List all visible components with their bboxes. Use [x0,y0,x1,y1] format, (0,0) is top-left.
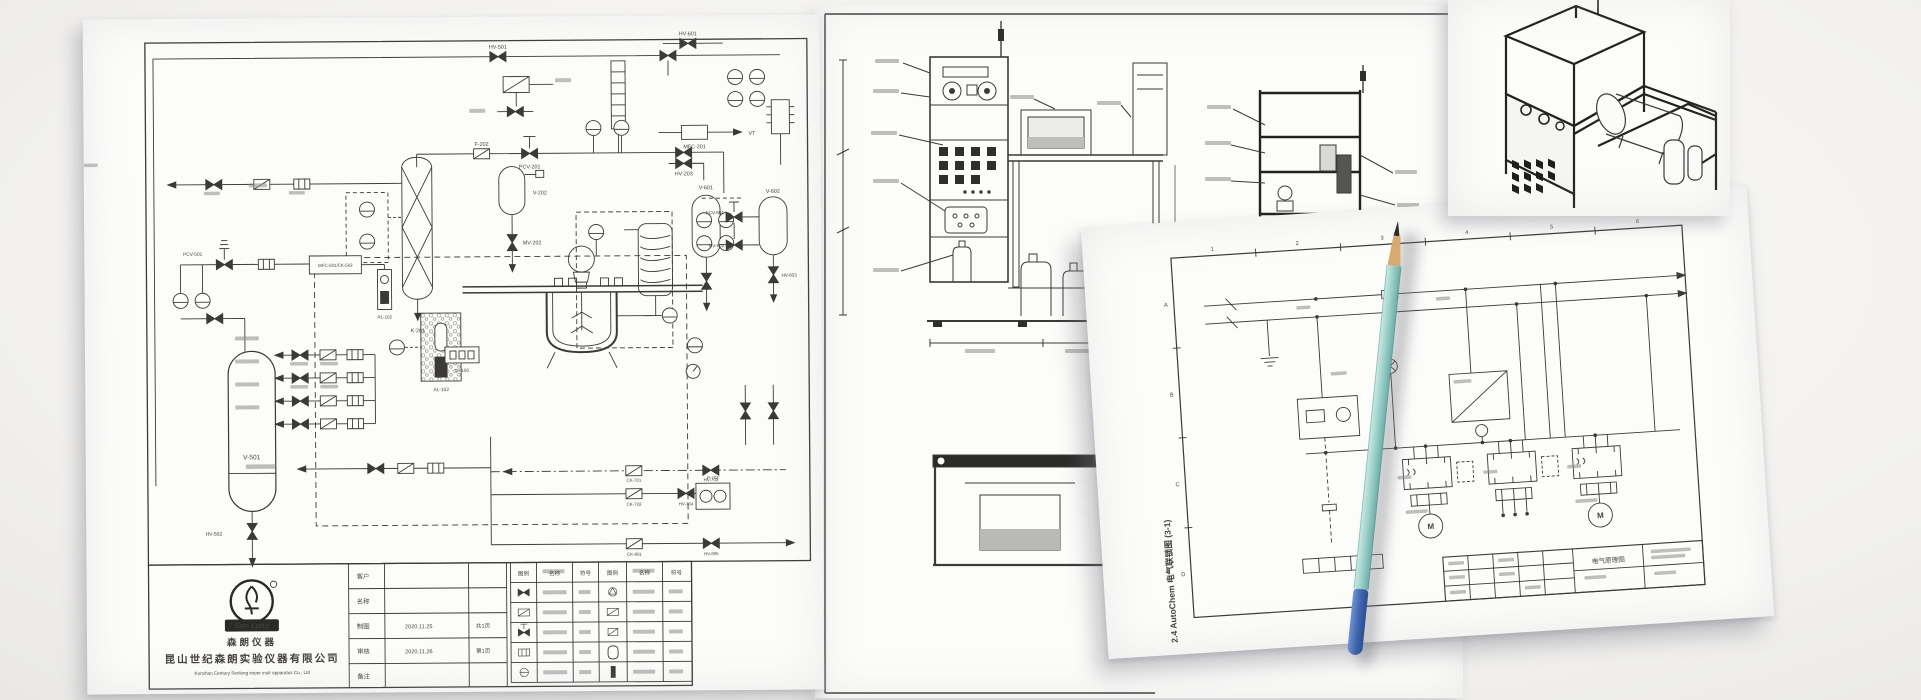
svg-text:1: 1 [1211,246,1215,252]
svg-text:PCV-501: PCV-501 [183,252,203,258]
svg-text:3: 3 [1380,235,1384,241]
svg-text:HV-704: HV-704 [679,501,694,506]
elec-caption: 2.4 AutoChem 电气联锁图 (3-1) [1161,519,1180,643]
svg-text:M: M [1597,511,1605,520]
svg-text:符号: 符号 [580,569,592,577]
svg-text:PCV-201: PCV-201 [519,164,541,170]
svg-text:CK-702: CK-702 [627,502,642,507]
svg-text:CK-801: CK-801 [627,552,642,557]
svg-text:HV-602: HV-602 [709,243,725,248]
isometric-drawing [1448,0,1730,216]
svg-text:备注: 备注 [357,672,370,681]
electrical-sheet: 1 2 3 4 5 6 A B C D M M 电气原理图 2.4 AutoCh… [1081,185,1774,659]
svg-text:AL-102: AL-102 [433,387,449,393]
svg-text:VT: VT [748,131,756,137]
svg-text:MV-202: MV-202 [523,240,542,246]
svg-text:共1页: 共1页 [476,622,491,630]
svg-text:V-601: V-601 [699,185,713,191]
svg-text:HV-603: HV-603 [781,273,797,278]
svg-text:DI-100: DI-100 [455,368,469,373]
svg-text:2020.11.25: 2020.11.25 [405,624,433,630]
svg-text:B: B [1170,392,1174,398]
svg-text:HV-502: HV-502 [206,532,223,538]
svg-text:审核: 审核 [357,647,370,656]
svg-text:FCV-601: FCV-601 [706,210,725,215]
svg-text:HV-805: HV-805 [704,551,719,556]
pencil-wood [1387,235,1403,266]
svg-text:图例: 图例 [607,569,619,577]
svg-text:4: 4 [1465,230,1469,236]
svg-text:HV-203: HV-203 [675,171,693,177]
svg-text:K-201: K-201 [411,328,425,334]
svg-text:C: C [1175,482,1179,488]
svg-text:5: 5 [1550,224,1554,230]
pid-sheet: HV-501 F-202 PCV-201 K-201 V-202 MV-202 … [83,14,825,694]
pid-title-block: 客户 名称 制图 审核 备注 2020.11.25 2020.11.26 共1页… [357,571,491,681]
pencil-tip-icon [1393,221,1400,237]
svg-text:F-202: F-202 [474,142,488,148]
svg-text:P-702: P-702 [707,475,719,480]
senlong-logo: Sen Long 森朗仪器 昆山世纪森朗实验仪器有限公司 Kunshan Cen… [164,580,340,676]
svg-text:2020.11.26: 2020.11.26 [405,649,433,655]
company-name-cn: 昆山世纪森朗实验仪器有限公司 [165,652,340,666]
svg-text:2: 2 [1295,241,1299,247]
svg-text:第1页: 第1页 [476,647,491,655]
svg-text:图例: 图例 [518,569,530,577]
svg-text:V-501: V-501 [243,454,261,461]
tag: HV-501 [489,45,507,51]
svg-text:MFC-201: MFC-201 [683,144,706,150]
svg-text:M: M [1427,522,1435,531]
svg-text:6: 6 [1636,219,1640,225]
svg-text:符号: 符号 [671,568,683,576]
company-name-en: Kunshan Century Senlong exper instr appa… [194,670,310,676]
logo-brand-cn: 森朗仪器 [227,636,277,648]
svg-text:CK-701: CK-701 [626,478,641,483]
svg-text:制图: 制图 [357,622,370,631]
svg-text:RL-102: RL-102 [378,314,393,319]
svg-text:名称: 名称 [549,569,561,577]
svg-text:V-602: V-602 [766,189,780,195]
elec-title: 电气原理图 [1592,555,1626,566]
electrical-schematic: 1 2 3 4 5 6 A B C D M M 电气原理图 2.4 AutoCh… [1081,185,1774,659]
isometric-sheet [1448,0,1730,216]
svg-text:MFC-501/CK-502: MFC-501/CK-502 [318,263,353,268]
svg-text:D: D [1181,572,1185,578]
legend-headers: 图例 名称 符号 图例 名称 符号 [518,568,683,577]
logo-mark: Sen Long [235,621,269,630]
svg-text:名称: 名称 [639,569,651,577]
svg-text:HV-601: HV-601 [679,31,697,37]
svg-text:客户: 客户 [357,572,370,581]
svg-text:名称: 名称 [357,597,370,606]
svg-text:A: A [1164,303,1168,309]
pid-drawing: HV-501 F-202 PCV-201 K-201 V-202 MV-202 … [83,14,825,694]
svg-text:V-202: V-202 [533,190,547,196]
photo-stage: HV-501 F-202 PCV-201 K-201 V-202 MV-202 … [0,0,1921,700]
